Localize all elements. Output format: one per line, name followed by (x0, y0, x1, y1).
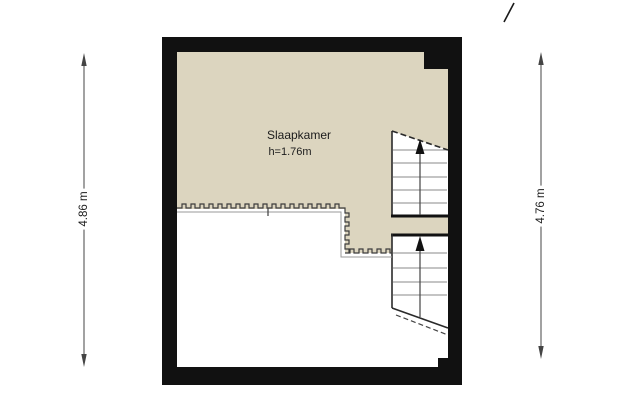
dimension-arrow-up-icon (538, 52, 543, 65)
floorplan-drawing (0, 0, 620, 414)
slash-mark (504, 3, 514, 22)
wall-notch-top-right (424, 52, 448, 69)
room-height-label: h=1.76m (268, 146, 311, 158)
dimension-arrow-down-icon (81, 354, 86, 367)
dimension-right-label: 4.76 m (534, 185, 548, 226)
floorplan-canvas: Slaapkamer h=1.76m 4.86 m 4.76 m (0, 0, 620, 414)
dimension-arrow-up-icon (81, 53, 86, 66)
dimension-arrow-down-icon (538, 346, 543, 359)
wall-notch-bottom-right (438, 358, 448, 367)
dimension-left-label: 4.86 m (77, 188, 91, 229)
room-name-label: Slaapkamer (267, 128, 331, 142)
